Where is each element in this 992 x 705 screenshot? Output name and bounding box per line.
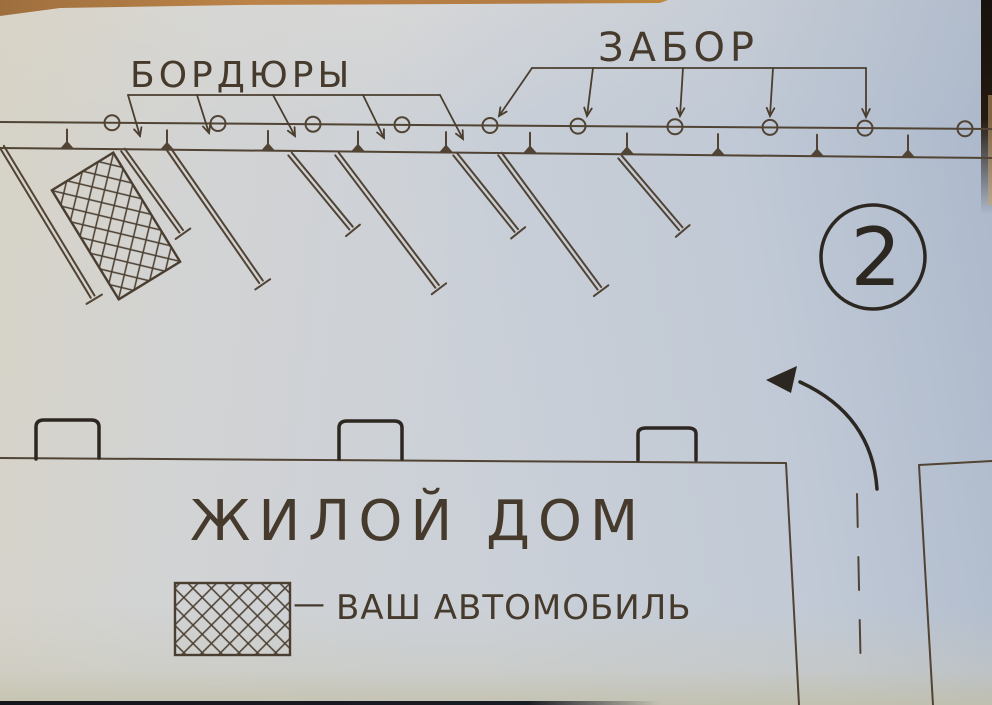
fence-arrow (587, 68, 593, 116)
right-building-outline (919, 461, 992, 705)
legend: — ВАШ АВТОМОБИЛЬ (175, 583, 692, 655)
fence-line (0, 122, 992, 129)
curbs-arrow (440, 95, 463, 139)
house-porch (638, 428, 696, 460)
scheme-number-badge: 2 (821, 205, 925, 309)
photo-of-paper-parking-scheme: 2 — ВАШ АВТОМОБИЛЬ БОРДЮРЫ ЗАБОР ЖИЛОЙ Д… (0, 0, 992, 705)
fence-callout (499, 68, 866, 117)
curb-bottom-line (0, 148, 992, 158)
parking-divider (493, 149, 609, 296)
curbs-callout (128, 95, 463, 139)
curbs-arrow (128, 95, 140, 136)
curbs-arrow (363, 95, 384, 138)
parking-divider (448, 148, 525, 238)
scheme-number: 2 (851, 211, 902, 304)
house-porch (36, 420, 99, 459)
curbs-label: БОРДЮРЫ (130, 55, 353, 96)
legend-dash: — (293, 584, 325, 622)
parking-divider (161, 143, 271, 290)
legend-car-swatch (175, 583, 290, 655)
house-porch (339, 421, 402, 459)
turn-arrow-head (766, 366, 797, 393)
curbs-arrow (197, 95, 209, 133)
parking-divider (613, 151, 689, 237)
fence-arrow (499, 68, 532, 116)
parking-divider (283, 148, 360, 236)
hand-drawn-sketch: 2 — ВАШ АВТОМОБИЛЬ БОРДЮРЫ ЗАБОР ЖИЛОЙ Д… (0, 0, 992, 705)
fence-arrow (770, 68, 773, 116)
road-center-dashed-line (857, 494, 861, 680)
curbs-arrow (273, 95, 295, 136)
your-car-symbol (52, 153, 180, 300)
legend-car-label: ВАШ АВТОМОБИЛЬ (336, 588, 692, 628)
turn-arrow-curve (800, 382, 877, 489)
house-label: ЖИЛОЙ ДОМ (190, 488, 646, 554)
fence-arrow (680, 68, 683, 116)
fence-label: ЗАБОР (598, 25, 759, 71)
